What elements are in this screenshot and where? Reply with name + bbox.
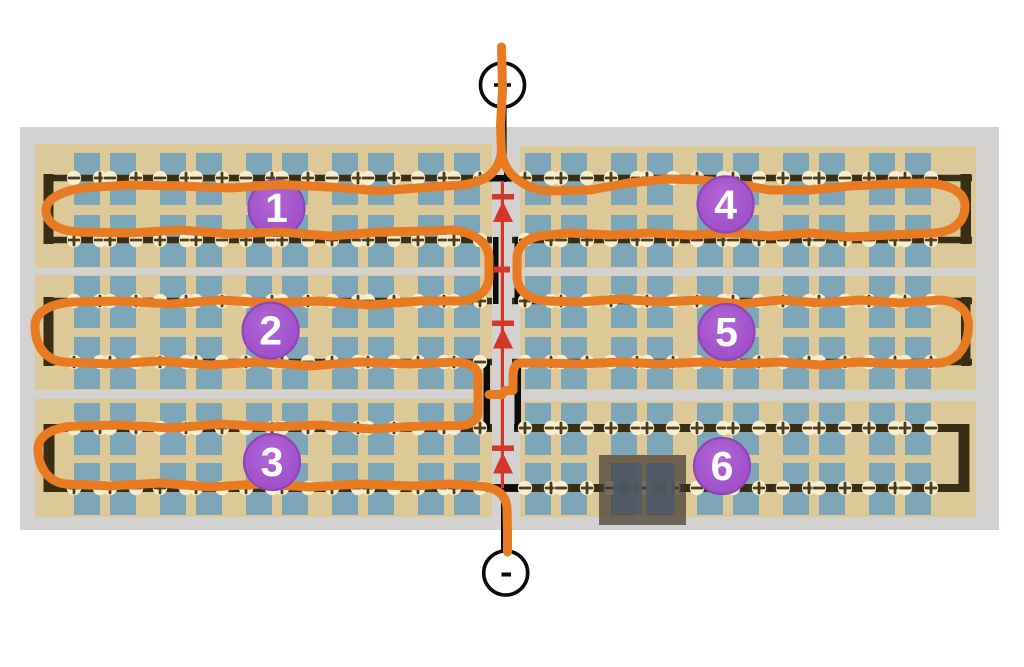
svg-text:1: 1 <box>265 185 288 231</box>
svg-text:5: 5 <box>715 309 738 355</box>
svg-text:6: 6 <box>711 443 734 489</box>
svg-text:3: 3 <box>261 439 284 485</box>
svg-text:4: 4 <box>714 181 737 227</box>
svg-text:2: 2 <box>259 308 282 354</box>
